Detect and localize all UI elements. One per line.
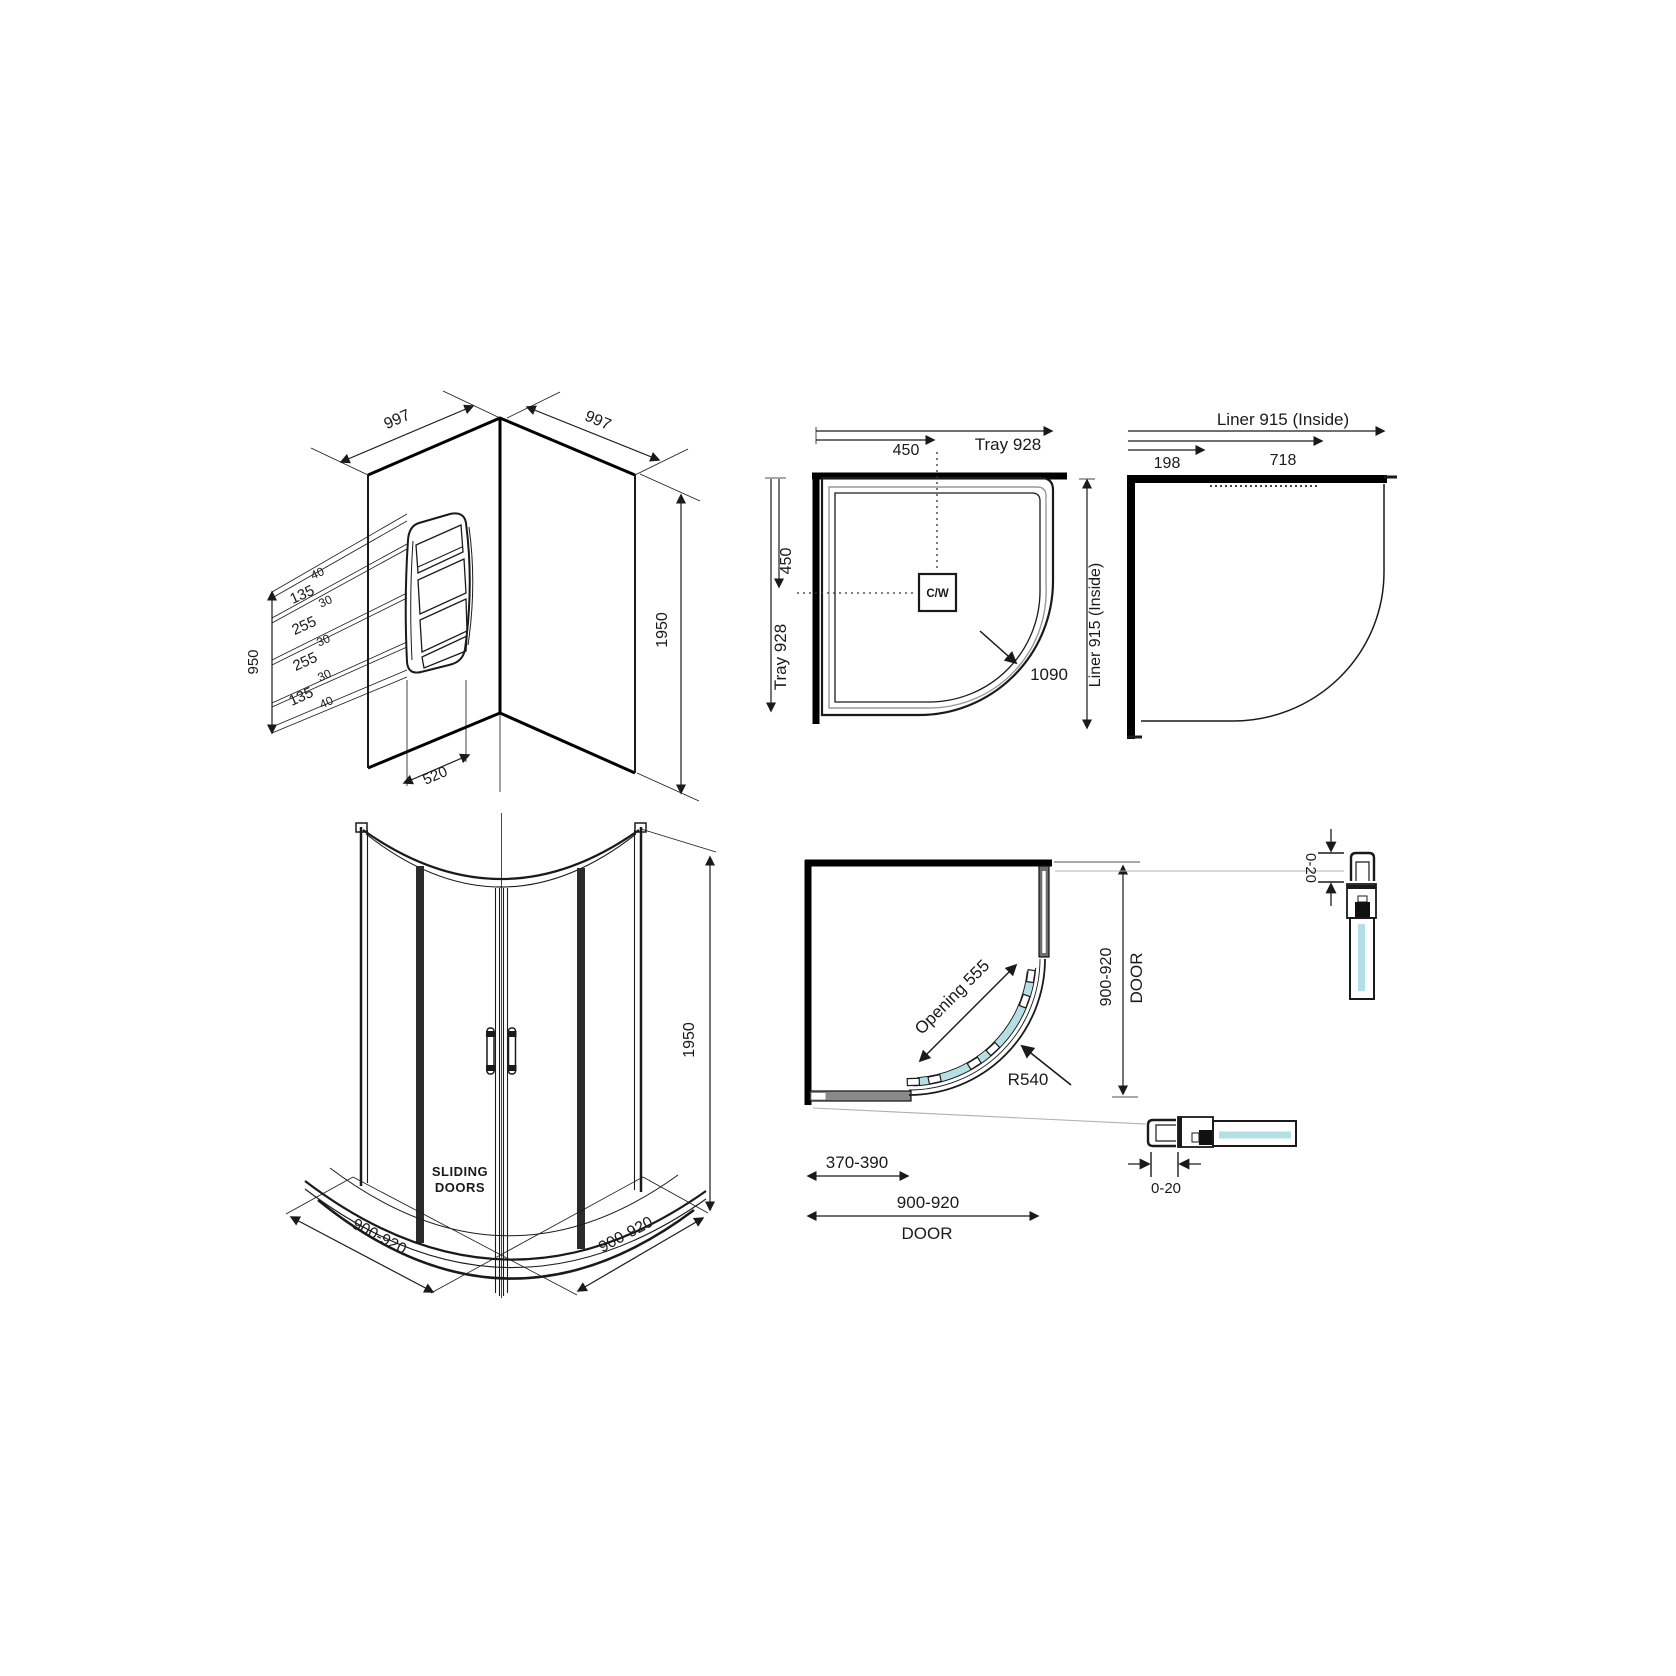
svg-text:30: 30 xyxy=(315,666,333,684)
top-adjust-label: 0-20 xyxy=(1302,853,1319,883)
opening-label: Opening 555 xyxy=(911,956,993,1038)
svg-text:30: 30 xyxy=(314,631,332,649)
adjustment-channel xyxy=(1347,884,1376,918)
bottom-rail xyxy=(810,1091,911,1101)
shower-enclosure-diagram: 997 997 1950 950 520 40 135 30 255 30 25… xyxy=(0,0,1676,1676)
svg-text:40: 40 xyxy=(308,564,326,582)
door-glass-label-1: SLIDING xyxy=(432,1164,488,1179)
door-profile-top-detail: 0-20 xyxy=(1302,829,1376,999)
liner-seg-short: 198 xyxy=(1154,455,1181,472)
liner-outline xyxy=(1141,484,1384,721)
dim-label-997-right: 997 xyxy=(582,408,613,434)
tray-side-offset: 450 xyxy=(778,548,795,575)
liner-side-total: Liner 915 (Inside) xyxy=(1087,563,1104,688)
dim-label-950: 950 xyxy=(245,649,262,674)
wall-panels xyxy=(368,418,635,773)
centre-waste-label: C/W xyxy=(926,588,949,600)
tray-walls xyxy=(805,473,1067,863)
technical-drawing-sheet: 997 997 1950 950 520 40 135 30 255 30 25… xyxy=(0,0,1676,1676)
liner-plan-diagram: Liner 915 (Inside) Liner 915 (Inside) 71… xyxy=(1079,410,1397,739)
enclosure-3d-diagram: SLIDING DOORS 1950 900-920 900-920 xyxy=(286,813,716,1298)
liner-walls xyxy=(1127,475,1397,739)
tray-diagonal: 1090 xyxy=(1030,665,1068,684)
plan-bottom-width: 900-920 xyxy=(897,1193,959,1212)
dim-label-520: 520 xyxy=(420,763,450,789)
corner-shelf-unit xyxy=(406,513,473,672)
wall-profile-top xyxy=(1039,866,1049,957)
top-rail-curves xyxy=(363,830,639,887)
dim-label-1950-enclosure: 1950 xyxy=(681,1022,698,1058)
detail-leader-lines xyxy=(813,871,1344,1124)
door-plan-diagram: Opening 555 R540 900-920 DOOR 370-390 90… xyxy=(805,860,1344,1243)
door-glass-label-2: DOORS xyxy=(435,1180,485,1195)
plan-bottom-door-label: DOOR xyxy=(902,1224,953,1243)
liner-top-total: Liner 915 (Inside) xyxy=(1217,410,1349,429)
svg-text:255: 255 xyxy=(289,613,319,639)
dim-label-1950-walls: 1950 xyxy=(654,612,671,648)
radius-label: R540 xyxy=(1008,1070,1049,1089)
glass-channel xyxy=(1350,918,1374,999)
panel-width-label: 370-390 xyxy=(826,1153,888,1172)
tray-top-offset: 450 xyxy=(893,442,920,459)
adjustment-channel xyxy=(1178,1117,1213,1147)
tray-plan-diagram: C/W 450 Tray 928 450 Tray 928 1090 xyxy=(765,427,1068,863)
adjust-dimension xyxy=(1128,1152,1201,1177)
adjust-dimension xyxy=(1318,829,1344,906)
glass-channel xyxy=(1213,1121,1296,1146)
svg-text:40: 40 xyxy=(317,693,335,711)
door-profile-bottom-detail: 0-20 xyxy=(1128,1117,1296,1197)
plan-side-width: 900-920 xyxy=(1098,948,1115,1007)
corner-walls-diagram: 997 997 1950 950 520 40 135 30 255 30 25… xyxy=(245,391,700,801)
bottom-adjust-label: 0-20 xyxy=(1151,1180,1181,1197)
wall-bracket xyxy=(1351,853,1374,881)
svg-text:30: 30 xyxy=(316,592,334,610)
wall-bracket xyxy=(1148,1120,1176,1146)
plan-side-door-label: DOOR xyxy=(1127,953,1146,1004)
tray-side-total: Tray 928 xyxy=(771,624,790,690)
svg-text:135: 135 xyxy=(287,582,317,608)
tray-top-total: Tray 928 xyxy=(975,435,1041,454)
dim-label-997-left: 997 xyxy=(382,407,413,433)
svg-text:135: 135 xyxy=(286,684,316,710)
shelf-segment-labels: 40 135 30 255 30 255 30 135 40 xyxy=(286,564,335,711)
glass-frame-strips xyxy=(416,866,585,1296)
liner-seg-long: 718 xyxy=(1270,452,1297,469)
